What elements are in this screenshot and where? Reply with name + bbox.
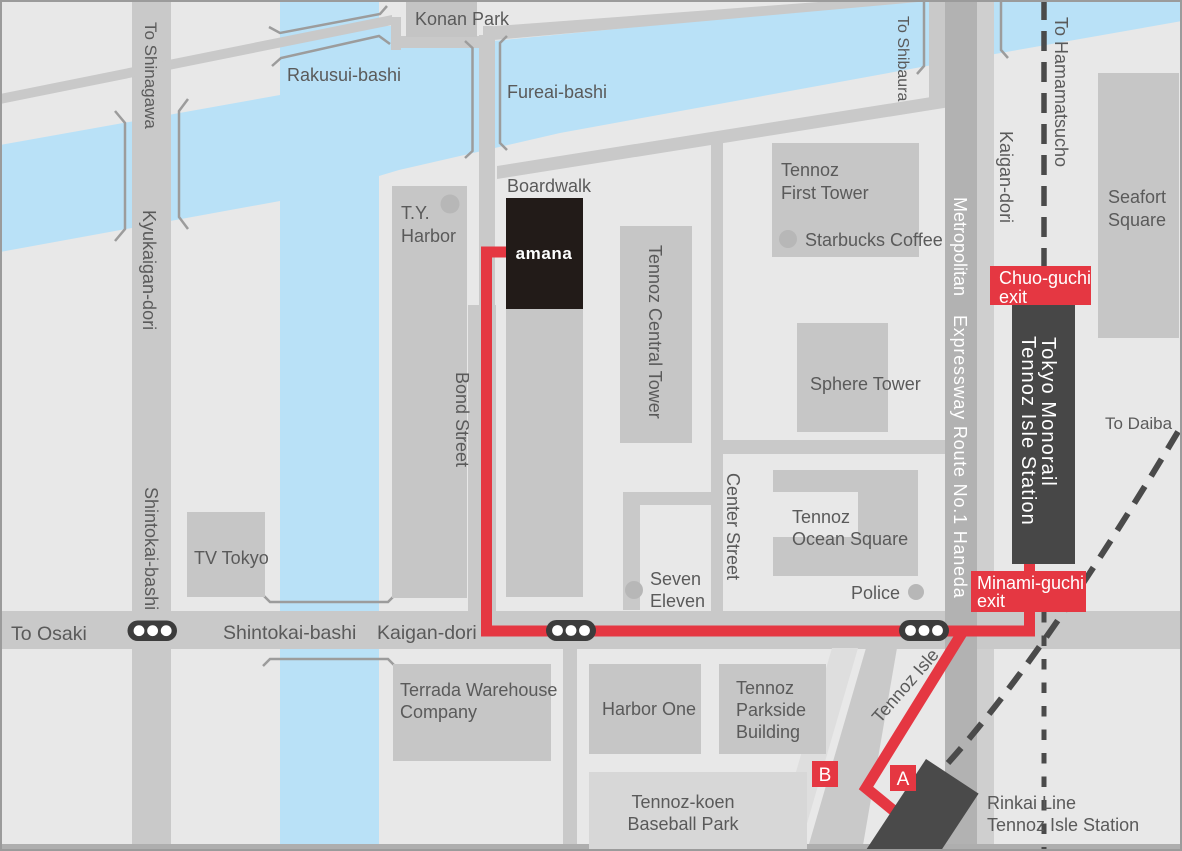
svg-text:Konan Park: Konan Park <box>415 9 510 29</box>
svg-text:Parkside: Parkside <box>736 700 806 720</box>
svg-text:Tennoz-koen: Tennoz-koen <box>631 792 734 812</box>
svg-text:Eleven: Eleven <box>650 591 705 611</box>
svg-text:To Shinagawa: To Shinagawa <box>141 22 160 129</box>
svg-text:Kaigan-dori: Kaigan-dori <box>996 131 1016 223</box>
svg-text:exit: exit <box>977 591 1005 611</box>
svg-text:Minami-guchi: Minami-guchi <box>977 573 1084 593</box>
svg-text:Square: Square <box>1108 210 1166 230</box>
svg-text:Shintokai-bashi: Shintokai-bashi <box>223 622 356 644</box>
svg-text:To Shibaura: To Shibaura <box>894 16 911 101</box>
svg-text:Fureai-bashi: Fureai-bashi <box>507 82 607 102</box>
svg-text:Expressway Route No.1 Haneda: Expressway Route No.1 Haneda <box>950 315 970 599</box>
svg-text:Seafort: Seafort <box>1108 187 1166 207</box>
svg-text:Harbor One: Harbor One <box>602 699 696 719</box>
svg-text:Seven: Seven <box>650 569 701 589</box>
svg-text:Company: Company <box>400 702 477 722</box>
svg-text:Boardwalk: Boardwalk <box>507 176 592 196</box>
svg-text:Rakusui-bashi: Rakusui-bashi <box>287 65 401 85</box>
svg-text:Sphere Tower: Sphere Tower <box>810 374 921 394</box>
svg-text:TV Tokyo: TV Tokyo <box>194 548 269 568</box>
svg-text:To Hamamatsucho: To Hamamatsucho <box>1051 17 1071 167</box>
svg-text:Starbucks Coffee: Starbucks Coffee <box>805 230 943 250</box>
svg-text:Rinkai Line: Rinkai Line <box>987 793 1076 813</box>
svg-text:To Daiba: To Daiba <box>1105 414 1173 433</box>
svg-text:To Osaki: To Osaki <box>11 623 87 645</box>
svg-text:Police: Police <box>851 583 900 603</box>
svg-text:Baseball Park: Baseball Park <box>627 814 739 834</box>
svg-text:Ocean Square: Ocean Square <box>792 529 908 549</box>
svg-text:T.Y.: T.Y. <box>401 203 430 223</box>
svg-text:Metropolitan: Metropolitan <box>950 197 970 296</box>
svg-text:Kyukaigan-dori: Kyukaigan-dori <box>139 210 159 330</box>
svg-text:Tennoz: Tennoz <box>781 160 839 180</box>
svg-text:amana: amana <box>516 244 573 263</box>
svg-text:Harbor: Harbor <box>401 226 456 246</box>
svg-text:Terrada Warehouse: Terrada Warehouse <box>400 680 557 700</box>
svg-text:First Tower: First Tower <box>781 183 869 203</box>
svg-text:A: A <box>897 769 910 790</box>
svg-text:Tennoz Isle Station: Tennoz Isle Station <box>987 815 1139 835</box>
svg-text:Tennoz Isle Station: Tennoz Isle Station <box>1017 336 1039 526</box>
svg-text:Center Street: Center Street <box>723 473 743 580</box>
svg-text:Tennoz: Tennoz <box>736 678 794 698</box>
svg-text:Tokyo Monorail: Tokyo Monorail <box>1037 337 1059 487</box>
svg-text:Building: Building <box>736 722 800 742</box>
svg-text:exit: exit <box>999 287 1027 307</box>
svg-text:B: B <box>819 765 832 786</box>
svg-text:Shintokai-bashi: Shintokai-bashi <box>141 487 161 610</box>
svg-text:Chuo-guchi: Chuo-guchi <box>999 268 1091 288</box>
svg-text:Tennoz: Tennoz <box>792 507 850 527</box>
svg-text:Bond Street: Bond Street <box>452 372 472 467</box>
svg-text:Tennoz Central Tower: Tennoz Central Tower <box>645 245 665 419</box>
svg-text:Kaigan-dori: Kaigan-dori <box>377 622 477 644</box>
